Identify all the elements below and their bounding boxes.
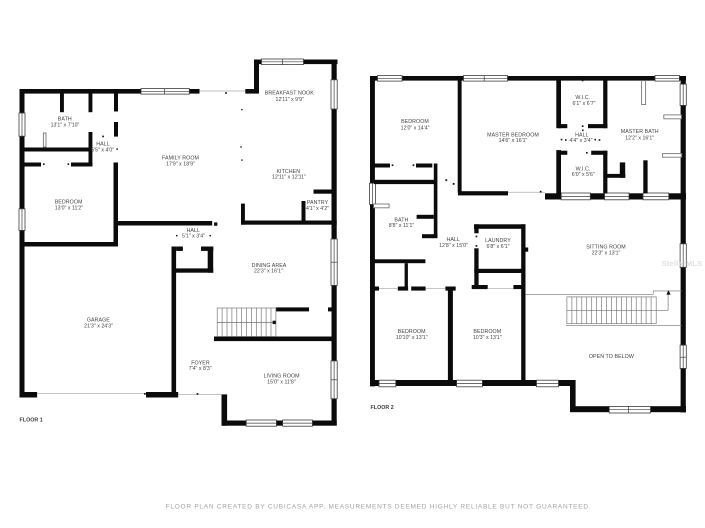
svg-text:10'3" x 13'1": 10'3" x 13'1" bbox=[473, 335, 502, 341]
svg-text:12'11" x 12'11": 12'11" x 12'11" bbox=[272, 174, 306, 180]
svg-text:FLOOR 1: FLOOR 1 bbox=[20, 417, 43, 423]
svg-text:12'0" x 14'4": 12'0" x 14'4" bbox=[401, 125, 430, 131]
svg-text:14'6" x 16'1": 14'6" x 16'1" bbox=[499, 138, 528, 144]
svg-text:13'0" x 11'2": 13'0" x 11'2" bbox=[55, 206, 84, 212]
svg-text:FLOOR PLAN CREATED BY CUBICASA: FLOOR PLAN CREATED BY CUBICASA APP. MEAS… bbox=[166, 503, 592, 510]
svg-text:MASTER BATH: MASTER BATH bbox=[621, 129, 659, 135]
svg-text:StellarMLS: StellarMLS bbox=[662, 259, 703, 268]
svg-text:6'1" x 6'7": 6'1" x 6'7" bbox=[572, 101, 595, 107]
svg-text:6'0" x 5'6": 6'0" x 5'6" bbox=[572, 172, 595, 178]
svg-text:4'1" x 4'2": 4'1" x 4'2" bbox=[306, 206, 329, 212]
svg-text:8'8" x 11'1": 8'8" x 11'1" bbox=[389, 223, 415, 229]
svg-text:10'10" x 13'1": 10'10" x 13'1" bbox=[396, 335, 428, 341]
svg-text:FLOOR 2: FLOOR 2 bbox=[371, 405, 394, 411]
svg-text:5'1" x 3'4": 5'1" x 3'4" bbox=[182, 234, 205, 240]
svg-text:17'9" x 18'9": 17'9" x 18'9" bbox=[166, 161, 195, 167]
svg-text:22'3" x 16'1": 22'3" x 16'1" bbox=[254, 269, 283, 275]
svg-text:BATH: BATH bbox=[58, 116, 72, 122]
svg-text:12'11" x 9'9": 12'11" x 9'9" bbox=[275, 97, 304, 103]
svg-text:5'5" x 4'0": 5'5" x 4'0" bbox=[91, 147, 114, 153]
svg-text:OPEN TO BELOW: OPEN TO BELOW bbox=[589, 354, 634, 360]
svg-text:BEDROOM: BEDROOM bbox=[401, 119, 429, 125]
svg-text:22'3" x 13'1": 22'3" x 13'1" bbox=[592, 250, 621, 256]
svg-text:BREAKFAST NOOK: BREAKFAST NOOK bbox=[265, 91, 314, 97]
svg-text:13'1" x 7'10": 13'1" x 7'10" bbox=[51, 122, 80, 128]
svg-text:4'4" x 3'4": 4'4" x 3'4" bbox=[569, 138, 592, 144]
svg-text:7'4" x 8'3": 7'4" x 8'3" bbox=[189, 366, 212, 372]
svg-text:21'3" x 24'3": 21'3" x 24'3" bbox=[84, 323, 113, 329]
svg-text:15'0" x 11'8": 15'0" x 11'8" bbox=[267, 380, 296, 386]
svg-text:6'8" x 6'1": 6'8" x 6'1" bbox=[486, 244, 509, 250]
svg-text:12'8" x 15'0": 12'8" x 15'0" bbox=[439, 243, 468, 249]
svg-text:12'2" x 16'1": 12'2" x 16'1" bbox=[625, 136, 654, 142]
